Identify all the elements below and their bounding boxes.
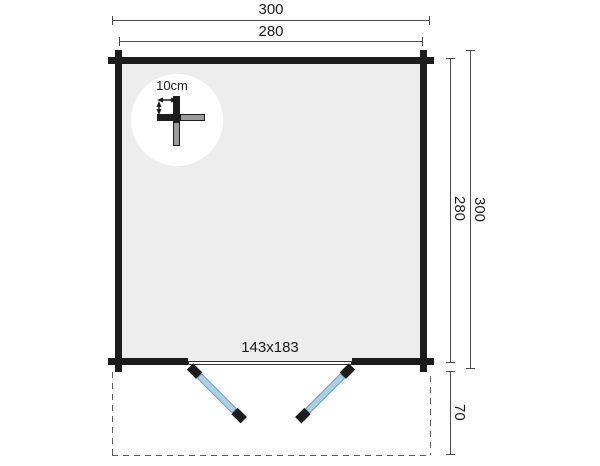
- wall-section-vertical-logend: [173, 122, 180, 146]
- terrace-outline-left: [112, 372, 113, 455]
- dimension-tick: [446, 371, 455, 372]
- thickness-arrows: [150, 92, 190, 122]
- dimension-tick: [446, 454, 455, 455]
- dimension-tick: [119, 37, 120, 46]
- door-panel: [197, 373, 237, 413]
- dimension-label-terrace-depth: 70: [452, 404, 466, 421]
- bottom-wall-right-segment: [352, 358, 434, 365]
- dimension-label-outer-width: 300: [112, 2, 430, 17]
- left-wall: [115, 50, 122, 372]
- wall-thickness-label: 10cm: [143, 79, 201, 92]
- dimension-tick: [429, 16, 430, 25]
- door-size-label: 143x183: [188, 340, 352, 355]
- dimension-line-inner-width: [119, 41, 423, 42]
- top-wall: [108, 57, 434, 64]
- dimension-line-outer-width: [112, 20, 430, 21]
- bottom-wall-left-segment: [108, 358, 188, 365]
- dimension-tick: [446, 58, 455, 59]
- door-leaf-left: [187, 363, 247, 423]
- dimension-tick: [112, 16, 113, 25]
- terrace-outline-right: [430, 376, 431, 455]
- dimension-tick: [466, 50, 475, 51]
- dimension-tick: [466, 368, 475, 369]
- terrace-outline-bottom: [112, 455, 431, 456]
- door-end-stub: [231, 408, 247, 424]
- dimension-tick: [422, 37, 423, 46]
- dimension-label-inner-height: 280: [452, 196, 466, 221]
- dimension-label-outer-height: 300: [472, 197, 486, 222]
- right-wall: [420, 50, 427, 372]
- door-leaf-right: [295, 363, 355, 423]
- door-threshold: [188, 361, 352, 365]
- dimension-label-inner-width: 280: [119, 24, 423, 39]
- door-panel: [305, 373, 345, 413]
- floor-plan: 300 280 143x183 10cm: [0, 0, 600, 466]
- dimension-tick: [446, 362, 455, 363]
